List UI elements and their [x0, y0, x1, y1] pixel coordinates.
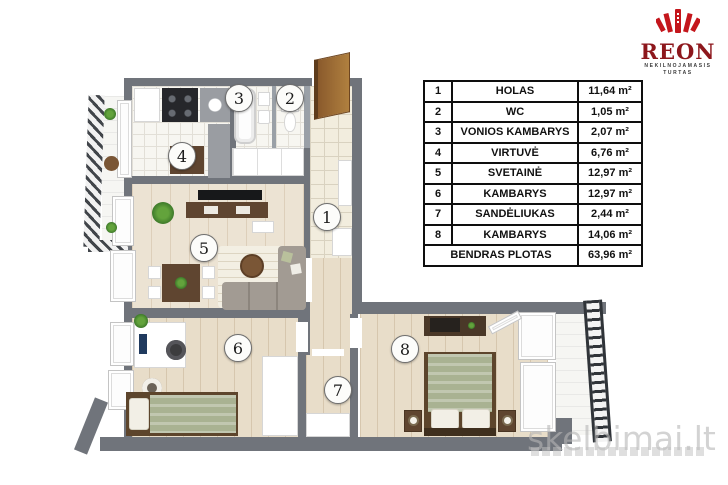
- wall-top-door-stub: [350, 78, 362, 86]
- hall-wardrobe-top: [232, 148, 304, 176]
- total-area-value: 63,96 m²: [578, 245, 642, 266]
- monitor: [139, 334, 147, 354]
- living-plant: [152, 202, 174, 224]
- room-number-cell: 4: [424, 143, 452, 164]
- room-area-cell: 12,97 m²: [578, 163, 642, 184]
- kitchen-balcony-window: [117, 100, 132, 178]
- room-number-cell: 5: [424, 163, 452, 184]
- living-window-1: [112, 196, 134, 246]
- room-number-cell: 2: [424, 102, 452, 123]
- room-name-cell: HOLAS: [452, 81, 578, 102]
- room-marker-8: 8: [391, 335, 419, 363]
- table-row: 6 KAMBARYS 12,97 m²: [424, 184, 642, 205]
- dining-chair: [148, 286, 161, 299]
- table-row: 4 VIRTUVĖ 6,76 m²: [424, 143, 642, 164]
- bed-headboard: [424, 428, 496, 436]
- tv: [198, 190, 262, 200]
- bedroom6-wardrobe: [262, 356, 298, 436]
- table-row: 3 VONIOS KAMBARYS 2,07 m²: [424, 122, 642, 143]
- sofa-pillow-white: [290, 263, 302, 275]
- room-area-cell: 6,76 m²: [578, 143, 642, 164]
- total-label: BENDRAS PLOTAS: [424, 245, 578, 266]
- hall-closet: [338, 160, 352, 206]
- clock-right: [502, 415, 513, 426]
- office-chair: [166, 340, 186, 360]
- table-row: 1 HOLAS 11,64 m²: [424, 81, 642, 102]
- dresser-top-detail: [430, 318, 460, 332]
- double-bed-pillow: [462, 409, 490, 429]
- room-area-table: 1 HOLAS 11,64 m² 2 WC 1,05 m² 3 VONIOS K…: [423, 80, 643, 267]
- room-area-cell: 2,07 m²: [578, 122, 642, 143]
- bedroom8-window: [518, 312, 556, 360]
- dining-chair: [148, 266, 161, 279]
- reon-logo: REON NEKILNOJAMASIS TURTAS: [633, 8, 723, 76]
- living-cabinet: [252, 221, 274, 233]
- wall-wc-hall: [304, 86, 310, 148]
- balcony-table: [104, 156, 119, 171]
- room-name-cell: SVETAINĖ: [452, 163, 578, 184]
- room-name-cell: VONIOS KAMBARYS: [452, 122, 578, 143]
- room-number-cell: 1: [424, 81, 452, 102]
- double-bed-blanket: [428, 354, 492, 412]
- room-marker-6: 6: [224, 334, 252, 362]
- door-opening-bedroom6: [296, 322, 308, 352]
- reon-buildings-icon: [656, 8, 700, 36]
- room-marker-1: 1: [313, 203, 341, 231]
- door-opening-storage: [312, 349, 344, 356]
- room-marker-3: 3: [225, 84, 253, 112]
- dining-chair: [202, 286, 215, 299]
- kitchen-stove: [162, 88, 198, 122]
- room-marker-7: 7: [324, 376, 352, 404]
- balcony-plant-1: [104, 108, 116, 120]
- room-name-cell: WC: [452, 102, 578, 123]
- dining-table-plant: [175, 277, 187, 289]
- washing-machine: [258, 110, 270, 124]
- table-row: 5 SVETAINĖ 12,97 m²: [424, 163, 642, 184]
- room-name-cell: KAMBARYS: [452, 225, 578, 246]
- table-row: 7 SANDĖLIUKAS 2,44 m²: [424, 204, 642, 225]
- kitchen-tall-unit: [208, 124, 230, 178]
- toilet-bowl: [284, 112, 296, 132]
- hall-wood-floor: [306, 258, 352, 355]
- single-bed-pillow: [129, 398, 149, 430]
- tv-stand: [186, 202, 268, 218]
- coffee-table: [240, 254, 264, 278]
- storage-shelves: [306, 413, 350, 437]
- room-marker-5: 5: [190, 234, 218, 262]
- wall-hall-right: [352, 86, 362, 302]
- room-area-cell: 1,05 m²: [578, 102, 642, 123]
- kitchen-cabinet-left: [134, 88, 160, 122]
- entrance-door: [314, 52, 350, 120]
- room-marker-2: 2: [276, 84, 304, 112]
- table-row: 2 WC 1,05 m²: [424, 102, 642, 123]
- dresser-plant: [468, 322, 475, 329]
- door-opening-bedroom8: [350, 318, 362, 348]
- bedroom6-window-1: [110, 322, 134, 366]
- room-number-cell: 6: [424, 184, 452, 205]
- clock-left: [408, 415, 419, 426]
- living-window-2: [110, 250, 136, 302]
- hall-shelf: [332, 228, 352, 256]
- room-marker-4: 4: [168, 142, 196, 170]
- floor-plan-image: 1 2 3 4 5 6 7 8 1 HOLAS 11,64 m² 2 WC 1,…: [0, 0, 728, 485]
- dining-chair: [202, 266, 215, 279]
- room-area-cell: 2,44 m²: [578, 204, 642, 225]
- logo-subtitle-line1: NEKILNOJAMASIS: [633, 63, 723, 70]
- double-bed-pillow: [431, 409, 459, 429]
- room-name-cell: SANDĖLIUKAS: [452, 204, 578, 225]
- room-number-cell: 8: [424, 225, 452, 246]
- watermark-squares: [531, 447, 704, 456]
- room-area-cell: 12,97 m²: [578, 184, 642, 205]
- logo-wordmark: REON: [633, 41, 723, 63]
- balcony-plant-2: [106, 222, 117, 233]
- table-total-row: BENDRAS PLOTAS 63,96 m²: [424, 245, 642, 266]
- room-number-cell: 7: [424, 204, 452, 225]
- table-row: 8 KAMBARYS 14,06 m²: [424, 225, 642, 246]
- room-area-cell: 14,06 m²: [578, 225, 642, 246]
- bathroom-sink: [258, 92, 270, 106]
- single-bed-blanket: [150, 395, 236, 433]
- wall-bedroom8-top: [352, 302, 606, 314]
- area-table-body: 1 HOLAS 11,64 m² 2 WC 1,05 m² 3 VONIOS K…: [424, 81, 642, 245]
- logo-subtitle-line2: TURTAS: [633, 70, 723, 77]
- room-area-cell: 11,64 m²: [578, 81, 642, 102]
- room-name-cell: KAMBARYS: [452, 184, 578, 205]
- wall-bottom-outer: [100, 437, 562, 451]
- room-number-cell: 3: [424, 122, 452, 143]
- bedroom6-plant: [134, 314, 148, 328]
- room-name-cell: VIRTUVĖ: [452, 143, 578, 164]
